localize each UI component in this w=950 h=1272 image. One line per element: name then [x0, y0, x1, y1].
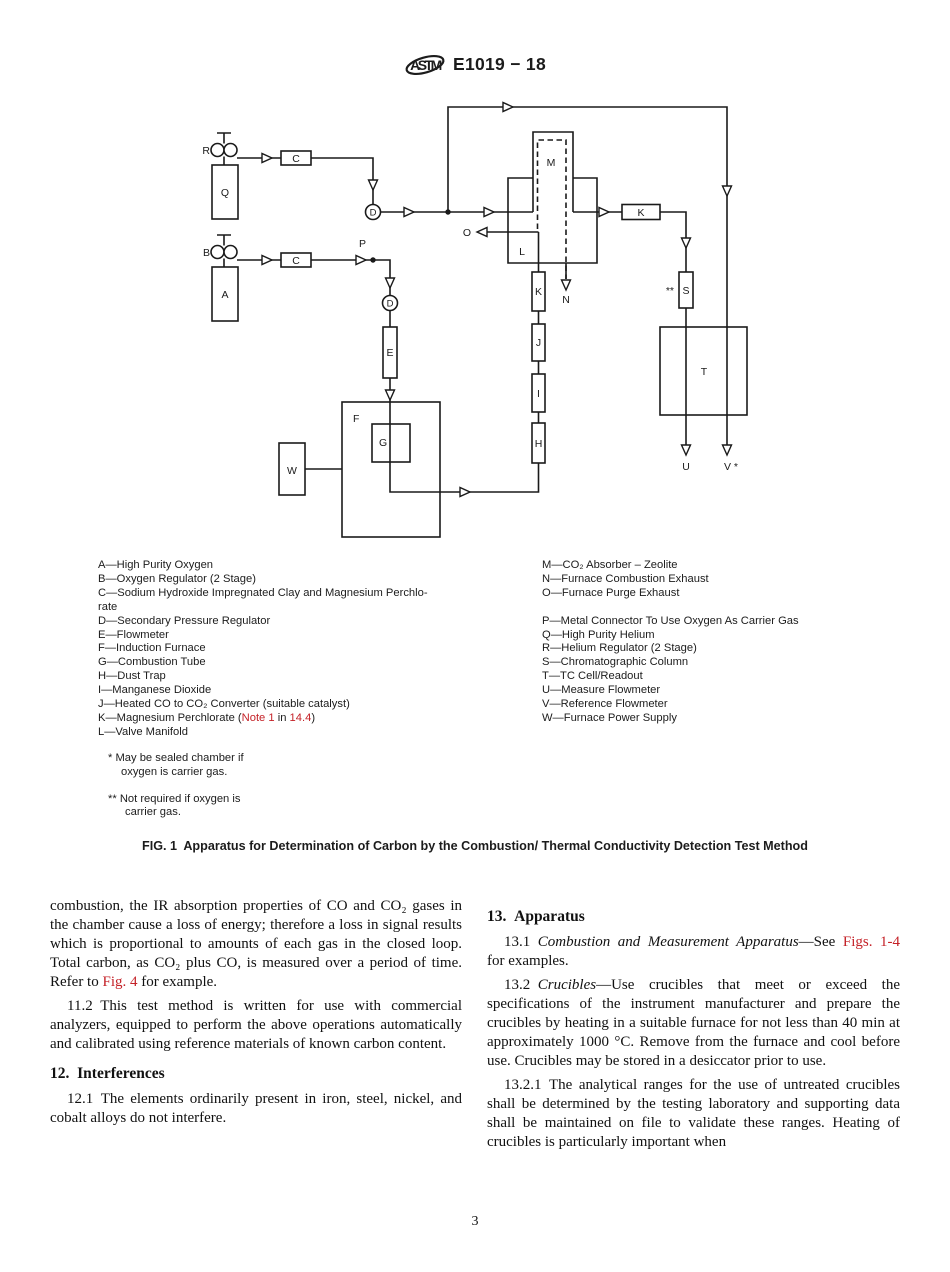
clause-title-italic: Combustion and Measurement Apparatus [538, 934, 799, 950]
flowmeter-e: E [383, 327, 397, 378]
legend-item-m: M—CO₂ Absorber – Zeolite [542, 559, 882, 573]
legend-right-column: M—CO₂ Absorber – Zeolite N—Furnace Combu… [542, 559, 882, 726]
legend-item-l: L—Valve Manifold [98, 726, 470, 740]
label-g: G [379, 437, 387, 449]
regulator-d2: D [383, 296, 398, 311]
label-a: A [221, 289, 228, 301]
junction-dot-p [370, 257, 375, 262]
junction-dot [445, 209, 450, 214]
label-f: F [353, 413, 359, 425]
clause-title-italic: Crucibles [538, 977, 596, 993]
label-l: L [519, 246, 525, 258]
paragraph-text: for example. [138, 974, 218, 990]
svg-text:ASTM: ASTM [410, 57, 442, 73]
legend-k-suffix: ) [311, 712, 315, 724]
column-s: S ** [666, 272, 693, 308]
regulator-d1: D [366, 205, 381, 220]
label-u: U [682, 461, 690, 473]
link-note-1[interactable]: Note 1 [242, 712, 275, 724]
legend-item-s: S—Chromatographic Column [542, 656, 882, 670]
legend-item-t: T—TC Cell/Readout [542, 670, 882, 684]
legend-left-column: A—High Purity Oxygen B—Oxygen Regulator … [98, 559, 470, 740]
legend-item-w: W—Furnace Power Supply [542, 712, 882, 726]
legend-item-f: F—Induction Furnace [98, 642, 470, 656]
helium-cylinder: R Q [202, 133, 238, 219]
label-j: J [536, 337, 541, 349]
legend-item-j: J—Heated CO to CO₂ Converter (suitable c… [98, 698, 470, 712]
label-s-note: ** [666, 285, 674, 297]
label-o: O [463, 227, 471, 239]
paragraph-13-2-1: 13.2.1 The analytical ranges for the use… [487, 1076, 900, 1152]
legend-item-o: O—Furnace Purge Exhaust [542, 587, 882, 601]
paragraph-12-1: 12.1 The elements ordinarily present in … [50, 1090, 462, 1128]
label-c1: C [292, 153, 300, 165]
link-14-4[interactable]: 14.4 [290, 712, 312, 724]
apparatus-diagram: R Q B A C C D D [0, 95, 950, 555]
legend-item-p: P—Metal Connector To Use Oxygen As Carri… [542, 615, 882, 629]
valve-manifold: L M [508, 132, 597, 279]
paragraph-13-1: 13.1 Combustion and Measurement Apparatu… [487, 933, 900, 971]
section-heading-13: 13. Apparatus [487, 907, 900, 926]
body-left-column: combustion, the IR absorption properties… [50, 897, 462, 1133]
label-k-inline: K [637, 207, 644, 219]
legend-item-i: I—Manganese Dioxide [98, 684, 470, 698]
label-w: W [287, 465, 297, 477]
paragraph-11-1-continued: combustion, the IR absorption properties… [50, 897, 462, 992]
standard-designation: E1019 − 18 [453, 54, 546, 75]
figure-caption: FIG. 1 Apparatus for Determination of Ca… [0, 839, 950, 853]
tc-cell-t: T [660, 327, 747, 415]
legend-item-r: R—Helium Regulator (2 Stage) [542, 642, 882, 656]
power-supply-w: W [279, 443, 305, 495]
label-s: S [682, 285, 689, 297]
paragraph-text: —See [799, 934, 843, 950]
legend-item-v: V—Reference Flowmeter [542, 698, 882, 712]
link-figs-1-4[interactable]: Figs. 1-4 [843, 934, 900, 950]
label-b: B [203, 247, 210, 259]
legend-item-u: U—Measure Flowmeter [542, 684, 882, 698]
paragraph-11-2: 11.2 This test method is written for use… [50, 997, 462, 1054]
induction-furnace: F G [342, 402, 440, 537]
legend-item-b: B—Oxygen Regulator (2 Stage) [98, 573, 470, 587]
legend-item-a: A—High Purity Oxygen [98, 559, 470, 573]
link-fig-4[interactable]: Fig. 4 [102, 974, 137, 990]
flow-arrows [262, 103, 732, 497]
legend-k-mid: in [275, 712, 290, 724]
label-h: H [535, 438, 543, 450]
label-n: N [562, 294, 570, 306]
label-p: P [359, 238, 366, 250]
footnote-double-asterisk: ** Not required if oxygen is carrier gas… [108, 793, 368, 821]
document-page: ASTM E1019 − 18 [0, 0, 950, 1272]
legend-k-prefix: K—Magnesium Perchlorate ( [98, 712, 242, 724]
astm-logo-icon: ASTM [404, 44, 446, 84]
legend-item-h: H—Dust Trap [98, 670, 470, 684]
section-heading-12: 12. Interferences [50, 1064, 462, 1083]
footnote-single-asterisk: * May be sealed chamber if oxygen is car… [108, 752, 368, 780]
body-right-column: 13. Apparatus 13.1 Combustion and Measur… [487, 897, 900, 1157]
oxygen-cylinder: B A [203, 235, 238, 321]
figure-footnotes: * May be sealed chamber if oxygen is car… [108, 752, 368, 833]
paragraph-text: for examples. [487, 953, 569, 969]
label-d1: D [370, 208, 377, 219]
label-v: V * [724, 461, 738, 473]
legend-item-g: G—Combustion Tube [98, 656, 470, 670]
label-k-chain: K [535, 286, 542, 298]
page-number: 3 [0, 1214, 950, 1230]
label-r: R [202, 145, 210, 157]
label-t: T [701, 366, 708, 378]
scrubber-c-oxygen: C [281, 253, 311, 267]
clause-number: 13.2 [504, 977, 538, 993]
label-c2: C [292, 255, 300, 267]
legend-item-k: K—Magnesium Perchlorate (Note 1 in 14.4) [98, 712, 470, 726]
page-header: ASTM E1019 − 18 [0, 44, 950, 84]
label-d2: D [387, 299, 394, 310]
legend-item-q: Q—High Purity Helium [542, 629, 882, 643]
scrubber-c-helium: C [281, 151, 311, 165]
legend-item-n: N—Furnace Combustion Exhaust [542, 573, 882, 587]
clause-number: 13.1 [504, 934, 538, 950]
label-m: M [547, 157, 556, 169]
label-e: E [386, 347, 393, 359]
label-i: I [537, 388, 540, 400]
perchlorate-k-inline: K [622, 205, 660, 220]
legend-item-d: D—Secondary Pressure Regulator [98, 615, 470, 629]
paragraph-13-2: 13.2 Crucibles—Use crucibles that meet o… [487, 976, 900, 1071]
legend-item-c: C—Sodium Hydroxide Impregnated Clay and … [98, 587, 470, 615]
label-q: Q [221, 187, 229, 199]
legend-item-e: E—Flowmeter [98, 629, 470, 643]
